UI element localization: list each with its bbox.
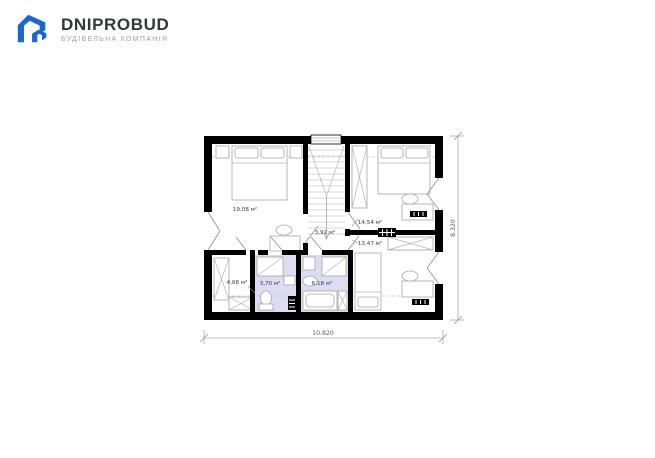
window	[311, 135, 341, 144]
sink	[284, 276, 295, 285]
door-bathroom-2	[311, 237, 322, 250]
pillow	[406, 148, 428, 158]
radiator	[378, 228, 396, 237]
desk	[402, 281, 433, 297]
chair	[402, 194, 418, 204]
pillow	[381, 148, 403, 158]
bedroom-2-furniture	[352, 146, 433, 220]
door-wardrobe-room	[236, 237, 246, 250]
room-label-bathroom-1: 3,70 м²	[260, 280, 281, 287]
chair	[276, 225, 292, 235]
radiator	[412, 299, 429, 305]
pillow	[358, 297, 378, 307]
desk	[270, 236, 300, 251]
bathtub-inner	[306, 294, 334, 307]
towel-radiator	[288, 296, 296, 310]
dormer-window	[427, 252, 439, 284]
height-dimension: 8.320	[450, 132, 464, 324]
room-label-bedroom-1: 19,08 м²	[233, 206, 257, 213]
room-label-bedroom-2: 14,54 м²	[358, 219, 382, 226]
bedroom-1-furniture	[216, 146, 302, 251]
staircase	[308, 146, 345, 239]
room-label-hall: 3,92 м²	[315, 229, 336, 236]
dormer-window	[208, 212, 220, 250]
pillow	[235, 148, 258, 158]
sink	[303, 257, 315, 270]
toilet	[261, 291, 272, 305]
nightstand	[290, 146, 302, 158]
nightstand	[216, 146, 229, 158]
floor-plan: 19,08 м² 3,92 м² 14,54 м² 13,47 м² 4,68 …	[0, 0, 655, 458]
pillow	[261, 148, 284, 158]
radiator	[410, 211, 427, 217]
width-dimension: 10.820	[200, 330, 447, 344]
toilet-tank	[259, 304, 273, 310]
chair	[402, 271, 418, 281]
width-dimension-label: 10.820	[312, 330, 334, 337]
bedroom-3-furniture	[355, 237, 433, 310]
room-label-bathroom-2: 6,18 м²	[312, 280, 333, 287]
room-label-bedroom-3: 13,47 м²	[358, 240, 382, 247]
room-label-wardrobe: 4,68 м²	[227, 279, 248, 286]
page: DNIPROBUD БУДІВЕЛЬНА КОМПАНІЯ	[0, 0, 655, 458]
height-dimension-label: 8.320	[450, 219, 457, 237]
